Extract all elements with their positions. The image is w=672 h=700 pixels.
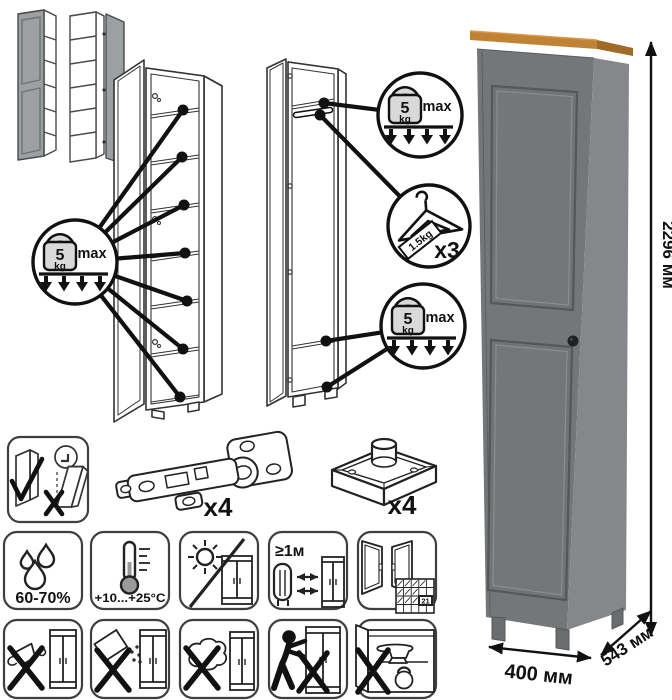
humidity-label: 60-70% xyxy=(15,590,70,607)
wardrobe-interior-lineart xyxy=(267,59,346,407)
depth-dimension: 543 мм xyxy=(597,611,656,670)
no-direct-sunlight-icon xyxy=(180,532,258,609)
weight-unit: kg xyxy=(54,262,66,273)
shelf-cabinet-lineart xyxy=(114,60,222,422)
height-dimension-label: 2296 мм xyxy=(659,221,672,289)
weight-max-label: max xyxy=(77,246,106,262)
adjustable-foot-icon: x4 xyxy=(332,439,436,520)
instruction-diagram: 5 kg max 5 kg max 1.5kg x3 xyxy=(0,0,672,700)
weight-unit: kg xyxy=(399,115,411,126)
bottom-shelf-load-limit-badge: 5 kg max xyxy=(381,284,465,368)
wall-anchor-warning-icon xyxy=(8,437,89,522)
wardrobe-product-render xyxy=(470,31,633,650)
no-liquids-icon xyxy=(4,620,82,698)
weight-unit: kg xyxy=(402,326,414,337)
weight-max-label: max xyxy=(422,99,451,115)
hanger-count-label: x3 xyxy=(434,237,460,263)
no-dragging-icon xyxy=(269,620,347,698)
no-scouring-icon xyxy=(180,620,258,698)
hinge-count-label: x4 xyxy=(204,492,233,522)
anvil-base xyxy=(389,658,407,663)
hanger-load-limit-badge: 1.5kg x3 xyxy=(388,185,470,267)
furniture-instruction-sheet: 5 kg max 5 kg max 1.5kg x3 xyxy=(0,0,672,700)
temperature-label: +10...+25°C xyxy=(95,591,166,605)
mini-wardrobe-closed-thumbnail xyxy=(18,10,56,160)
heater-distance-label: ≥1м xyxy=(275,543,305,560)
ventilation-acclimatization-icon: 21 xyxy=(358,532,436,613)
wardrobe-top-trim-side xyxy=(597,40,633,56)
temperature-icon: +10...+25°C xyxy=(91,532,169,609)
humidity-icon: 60-70% xyxy=(4,532,82,609)
no-abrasive-powder-icon xyxy=(91,620,169,698)
height-dimension: 2296 мм xyxy=(651,42,672,636)
kettlebell-icon xyxy=(396,672,413,689)
wardrobe-top-trim-front xyxy=(470,31,597,49)
calendar-day-label: 21 xyxy=(421,597,429,606)
door-knob xyxy=(568,336,579,347)
width-dimension: 400 мм xyxy=(489,647,591,690)
shelf-load-limit-badge-left: 5 kg max xyxy=(33,220,117,304)
depth-dimension-label: 543 мм xyxy=(597,623,656,671)
hinge-hardware-icon: x4 xyxy=(112,431,296,522)
top-shelf-load-limit-badge: 5 kg max xyxy=(378,73,462,157)
width-dimension-label: 400 мм xyxy=(503,661,573,690)
foot-count-label: x4 xyxy=(388,490,417,520)
weight-max-label: max xyxy=(425,310,454,326)
heater-distance-icon: ≥1м xyxy=(269,532,347,609)
no-overloading-icon xyxy=(356,620,436,698)
